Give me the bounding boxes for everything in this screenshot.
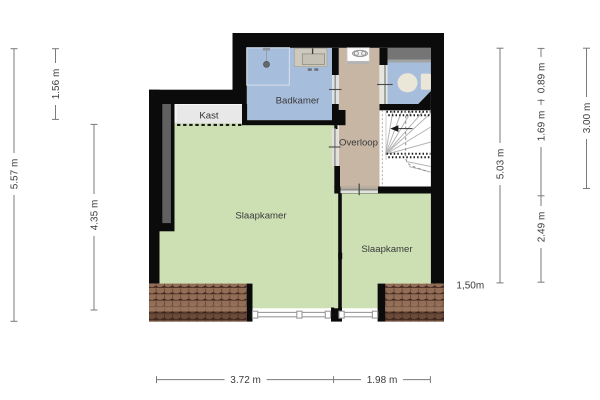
svg-text:1.69 m: 1.69 m	[537, 111, 548, 142]
svg-text:3.00 m: 3.00 m	[582, 103, 593, 134]
svg-text:Slaapkamer: Slaapkamer	[235, 210, 287, 221]
svg-text:5.03 m: 5.03 m	[496, 149, 507, 180]
svg-text:Slaapkamer: Slaapkamer	[361, 244, 413, 255]
svg-text:Badkamer: Badkamer	[276, 96, 321, 107]
svg-text:0.89 m: 0.89 m	[537, 63, 548, 94]
svg-text:2.49 m: 2.49 m	[537, 212, 548, 243]
svg-text:3.72 m: 3.72 m	[230, 375, 261, 386]
svg-text:4.35 m: 4.35 m	[90, 200, 101, 231]
svg-text:Overloop: Overloop	[339, 138, 378, 149]
svg-text:Kast: Kast	[199, 111, 219, 122]
svg-text:1.56 m: 1.56 m	[51, 69, 62, 100]
svg-text:5.57 m: 5.57 m	[10, 159, 21, 190]
svg-text:1,50m: 1,50m	[456, 281, 484, 292]
svg-text:1.98 m: 1.98 m	[367, 375, 398, 386]
